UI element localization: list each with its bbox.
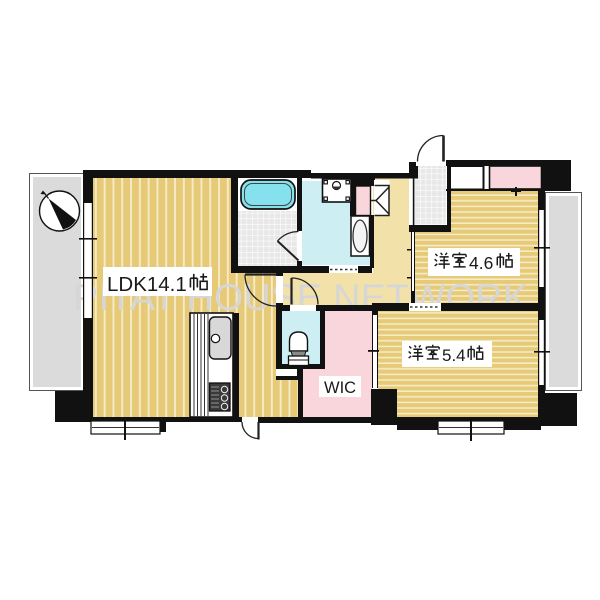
svg-text:LDK14.1: LDK14.1 — [107, 273, 187, 296]
svg-text:5.4: 5.4 — [442, 346, 466, 365]
svg-text:4.6: 4.6 — [469, 253, 493, 273]
svg-text:WIC: WIC — [324, 379, 356, 397]
